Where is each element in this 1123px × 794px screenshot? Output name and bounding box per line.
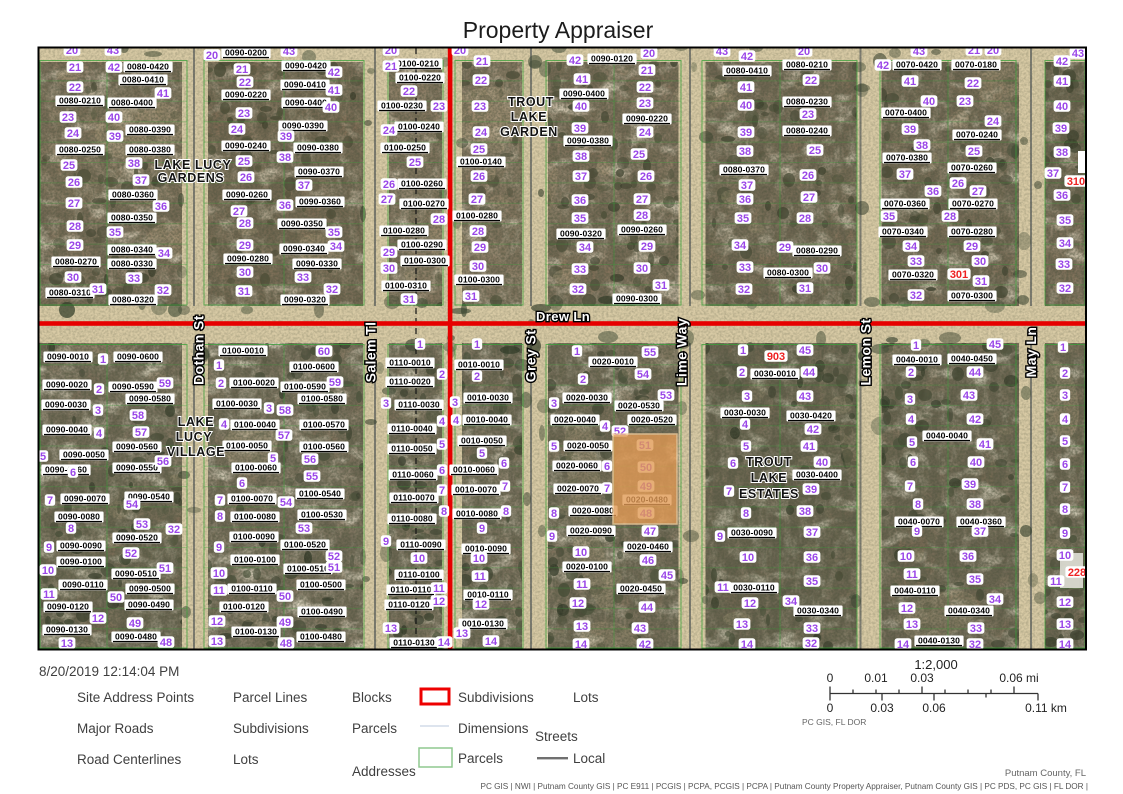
svg-text:0090-0400: 0090-0400 bbox=[563, 89, 605, 99]
svg-text:26: 26 bbox=[640, 171, 652, 183]
svg-text:32: 32 bbox=[168, 524, 180, 536]
svg-text:36: 36 bbox=[1056, 190, 1068, 202]
svg-text:3: 3 bbox=[266, 403, 272, 415]
svg-text:0040-0340: 0040-0340 bbox=[948, 606, 990, 616]
svg-text:37: 37 bbox=[1047, 168, 1059, 180]
svg-text:0: 0 bbox=[827, 701, 834, 715]
svg-text:25: 25 bbox=[633, 149, 645, 161]
svg-text:32: 32 bbox=[326, 284, 338, 296]
svg-text:26: 26 bbox=[802, 170, 814, 182]
svg-text:30: 30 bbox=[472, 261, 484, 273]
svg-text:4: 4 bbox=[221, 419, 228, 431]
svg-text:41: 41 bbox=[803, 441, 815, 453]
svg-text:0020-0060: 0020-0060 bbox=[556, 461, 598, 471]
svg-text:5: 5 bbox=[551, 441, 557, 453]
svg-text:7: 7 bbox=[1062, 482, 1068, 494]
svg-text:0080-0290: 0080-0290 bbox=[796, 246, 838, 256]
svg-text:TROUT: TROUT bbox=[746, 455, 792, 469]
svg-text:26: 26 bbox=[68, 177, 80, 189]
svg-text:2: 2 bbox=[580, 374, 586, 386]
svg-text:39: 39 bbox=[574, 123, 586, 135]
svg-text:May Ln: May Ln bbox=[1023, 327, 1039, 378]
svg-text:0070-0240: 0070-0240 bbox=[956, 130, 998, 140]
svg-text:0090-0040: 0090-0040 bbox=[46, 425, 88, 435]
svg-text:10: 10 bbox=[213, 568, 225, 580]
svg-text:0110-0120: 0110-0120 bbox=[388, 600, 430, 610]
svg-text:3: 3 bbox=[1062, 390, 1068, 402]
svg-text:35: 35 bbox=[883, 211, 895, 223]
svg-text:33: 33 bbox=[128, 273, 140, 285]
svg-text:12: 12 bbox=[572, 598, 584, 610]
svg-text:28: 28 bbox=[944, 211, 956, 223]
svg-text:11: 11 bbox=[1050, 576, 1062, 588]
svg-text:32: 32 bbox=[572, 284, 584, 296]
svg-text:0080-0340: 0080-0340 bbox=[111, 245, 153, 255]
svg-text:0110-0130: 0110-0130 bbox=[393, 638, 435, 648]
svg-text:8: 8 bbox=[441, 506, 447, 518]
svg-text:25: 25 bbox=[409, 157, 421, 169]
svg-text:26: 26 bbox=[473, 171, 485, 183]
svg-text:0: 0 bbox=[827, 671, 834, 685]
svg-text:0090-0010: 0090-0010 bbox=[47, 352, 89, 362]
svg-text:41: 41 bbox=[157, 88, 169, 100]
svg-text:6: 6 bbox=[70, 467, 76, 479]
svg-text:29: 29 bbox=[966, 241, 978, 253]
svg-text:3: 3 bbox=[551, 398, 557, 410]
svg-text:0030-0030: 0030-0030 bbox=[724, 408, 766, 418]
svg-text:45: 45 bbox=[661, 570, 673, 582]
svg-text:10: 10 bbox=[413, 553, 425, 565]
svg-text:39: 39 bbox=[904, 124, 916, 136]
svg-text:42: 42 bbox=[807, 424, 819, 436]
svg-text:12: 12 bbox=[92, 613, 104, 625]
svg-text:24: 24 bbox=[383, 125, 396, 137]
svg-text:36: 36 bbox=[279, 200, 291, 212]
svg-text:49: 49 bbox=[129, 618, 141, 630]
svg-text:0030-0110: 0030-0110 bbox=[733, 583, 775, 593]
svg-text:4: 4 bbox=[602, 421, 609, 433]
svg-text:57: 57 bbox=[278, 430, 290, 442]
svg-text:26: 26 bbox=[383, 179, 395, 191]
svg-text:2: 2 bbox=[908, 367, 914, 379]
svg-text:0110-0080: 0110-0080 bbox=[391, 514, 433, 524]
svg-text:2: 2 bbox=[474, 371, 480, 383]
svg-text:0100-0050: 0100-0050 bbox=[226, 441, 268, 451]
svg-text:10: 10 bbox=[742, 552, 754, 564]
svg-text:0070-0420: 0070-0420 bbox=[896, 60, 938, 70]
svg-text:LAKE: LAKE bbox=[178, 415, 214, 429]
svg-text:0090-0320: 0090-0320 bbox=[284, 295, 326, 305]
svg-text:35: 35 bbox=[574, 213, 586, 225]
svg-text:24: 24 bbox=[231, 124, 244, 136]
svg-text:0020-0450: 0020-0450 bbox=[620, 584, 662, 594]
svg-text:9: 9 bbox=[549, 531, 555, 543]
svg-text:7: 7 bbox=[604, 483, 610, 495]
svg-text:0010-0070: 0010-0070 bbox=[455, 485, 497, 495]
svg-text:0090-0090: 0090-0090 bbox=[60, 541, 102, 551]
svg-text:0110-0040: 0110-0040 bbox=[391, 424, 433, 434]
svg-text:0090-0380: 0090-0380 bbox=[567, 136, 609, 146]
svg-text:0070-0400: 0070-0400 bbox=[885, 108, 927, 118]
svg-text:0040-0040: 0040-0040 bbox=[926, 431, 968, 441]
svg-text:0100-0230: 0100-0230 bbox=[381, 101, 423, 111]
svg-text:35: 35 bbox=[969, 574, 981, 586]
svg-text:24: 24 bbox=[639, 127, 652, 139]
svg-text:0080-0400: 0080-0400 bbox=[111, 98, 153, 108]
svg-text:29: 29 bbox=[779, 242, 791, 254]
svg-text:0080-0380: 0080-0380 bbox=[129, 145, 171, 155]
svg-text:56: 56 bbox=[304, 454, 316, 466]
svg-text:48: 48 bbox=[160, 637, 172, 649]
svg-text:8: 8 bbox=[915, 499, 921, 511]
svg-text:1: 1 bbox=[913, 340, 919, 352]
svg-text:0010-0090: 0010-0090 bbox=[465, 544, 507, 554]
svg-text:0110-0010: 0110-0010 bbox=[389, 358, 431, 368]
svg-text:54: 54 bbox=[280, 497, 293, 509]
svg-text:30: 30 bbox=[636, 263, 648, 275]
svg-text:41: 41 bbox=[979, 439, 991, 451]
svg-text:0020-0080: 0020-0080 bbox=[572, 506, 614, 516]
svg-text:28: 28 bbox=[799, 213, 811, 225]
svg-text:4: 4 bbox=[96, 428, 103, 440]
svg-text:0020-0070: 0020-0070 bbox=[557, 484, 599, 494]
svg-text:0.06: 0.06 bbox=[922, 701, 946, 715]
svg-text:1: 1 bbox=[216, 360, 222, 372]
svg-text:0020-0050: 0020-0050 bbox=[567, 441, 609, 451]
svg-text:23: 23 bbox=[62, 112, 74, 124]
svg-text:40: 40 bbox=[1056, 101, 1068, 113]
svg-text:21: 21 bbox=[236, 64, 248, 76]
svg-text:29: 29 bbox=[641, 241, 653, 253]
svg-text:10: 10 bbox=[575, 547, 587, 559]
svg-text:1: 1 bbox=[574, 346, 580, 358]
svg-text:0.03: 0.03 bbox=[870, 701, 894, 715]
svg-text:0090-0500: 0090-0500 bbox=[129, 584, 171, 594]
svg-text:9: 9 bbox=[1062, 528, 1068, 540]
svg-text:36: 36 bbox=[927, 186, 939, 198]
svg-text:45: 45 bbox=[989, 339, 1001, 351]
svg-text:59: 59 bbox=[159, 378, 171, 390]
svg-text:35: 35 bbox=[109, 227, 121, 239]
svg-text:22: 22 bbox=[805, 75, 817, 87]
svg-text:0100-0570: 0100-0570 bbox=[303, 420, 345, 430]
svg-text:29: 29 bbox=[474, 242, 486, 254]
svg-text:33: 33 bbox=[297, 272, 309, 284]
svg-text:33: 33 bbox=[970, 623, 982, 635]
svg-text:0090-0590: 0090-0590 bbox=[112, 382, 154, 392]
svg-text:1: 1 bbox=[740, 345, 746, 357]
svg-text:44: 44 bbox=[803, 367, 816, 379]
svg-text:6: 6 bbox=[239, 478, 245, 490]
svg-text:55: 55 bbox=[306, 471, 318, 483]
svg-text:0090-0030: 0090-0030 bbox=[45, 400, 87, 410]
svg-text:38: 38 bbox=[916, 140, 928, 152]
svg-text:0090-0350: 0090-0350 bbox=[281, 219, 323, 229]
svg-text:5: 5 bbox=[439, 439, 445, 451]
svg-text:0030-0420: 0030-0420 bbox=[790, 411, 832, 421]
svg-text:1: 1 bbox=[1060, 342, 1066, 354]
svg-text:44: 44 bbox=[641, 602, 654, 614]
svg-text:6: 6 bbox=[1062, 459, 1068, 471]
svg-text:0090-0380: 0090-0380 bbox=[297, 143, 339, 153]
svg-text:40: 40 bbox=[816, 457, 828, 469]
svg-text:45: 45 bbox=[799, 345, 811, 357]
svg-text:34: 34 bbox=[579, 242, 592, 254]
svg-text:42: 42 bbox=[108, 62, 120, 74]
svg-text:23: 23 bbox=[474, 101, 486, 113]
svg-text:Lemon St: Lemon St bbox=[858, 319, 874, 386]
svg-text:28: 28 bbox=[636, 210, 648, 222]
svg-text:27: 27 bbox=[636, 194, 648, 206]
svg-text:42: 42 bbox=[328, 67, 340, 79]
svg-text:36: 36 bbox=[739, 194, 751, 206]
svg-text:0100-0590: 0100-0590 bbox=[284, 382, 326, 392]
svg-text:39: 39 bbox=[280, 131, 292, 143]
svg-text:36: 36 bbox=[806, 552, 818, 564]
svg-text:11: 11 bbox=[43, 589, 55, 601]
svg-text:0100-0530: 0100-0530 bbox=[301, 510, 343, 520]
svg-text:0090-0080: 0090-0080 bbox=[58, 512, 100, 522]
svg-text:0090-0260: 0090-0260 bbox=[226, 190, 268, 200]
svg-text:12: 12 bbox=[901, 603, 913, 615]
svg-text:13: 13 bbox=[906, 619, 918, 631]
svg-text:0090-0200: 0090-0200 bbox=[225, 48, 267, 58]
svg-text:0100-0110: 0100-0110 bbox=[231, 584, 273, 594]
svg-text:26: 26 bbox=[952, 178, 964, 190]
svg-text:57: 57 bbox=[135, 427, 147, 439]
svg-text:0100-0040: 0100-0040 bbox=[234, 420, 276, 430]
svg-text:0010-0110: 0010-0110 bbox=[467, 590, 509, 600]
svg-text:0070-0300: 0070-0300 bbox=[951, 291, 993, 301]
svg-text:0100-0300: 0100-0300 bbox=[458, 275, 500, 285]
svg-text:0070-0320: 0070-0320 bbox=[892, 270, 934, 280]
svg-text:34: 34 bbox=[785, 596, 798, 608]
svg-text:0020-0520: 0020-0520 bbox=[631, 415, 673, 425]
svg-text:54: 54 bbox=[126, 499, 139, 511]
svg-text:0090-0360: 0090-0360 bbox=[299, 197, 341, 207]
svg-text:ESTATES: ESTATES bbox=[739, 487, 799, 501]
svg-text:0100-0280: 0100-0280 bbox=[456, 211, 498, 221]
svg-text:51: 51 bbox=[328, 562, 340, 574]
svg-text:0100-0080: 0100-0080 bbox=[234, 512, 276, 522]
svg-text:6: 6 bbox=[730, 458, 736, 470]
svg-text:0090-0110: 0090-0110 bbox=[62, 580, 104, 590]
svg-text:0100-0600: 0100-0600 bbox=[293, 362, 335, 372]
svg-text:37: 37 bbox=[974, 526, 986, 538]
svg-text:22: 22 bbox=[639, 82, 651, 94]
svg-text:34: 34 bbox=[158, 248, 171, 260]
svg-text:Road Centerlines: Road Centerlines bbox=[77, 752, 182, 767]
svg-text:0090-0580: 0090-0580 bbox=[129, 394, 171, 404]
svg-text:0020-0090: 0020-0090 bbox=[570, 526, 612, 536]
svg-text:0090-0490: 0090-0490 bbox=[128, 600, 170, 610]
svg-text:0010-0010: 0010-0010 bbox=[458, 360, 500, 370]
svg-text:LAKE: LAKE bbox=[511, 110, 547, 124]
svg-text:0070-0340: 0070-0340 bbox=[882, 227, 924, 237]
svg-text:23: 23 bbox=[639, 98, 651, 110]
svg-text:0100-0100: 0100-0100 bbox=[234, 555, 276, 565]
svg-text:0100-0580: 0100-0580 bbox=[301, 394, 343, 404]
svg-text:37: 37 bbox=[298, 180, 310, 192]
svg-text:40: 40 bbox=[108, 112, 120, 124]
svg-text:Parcels: Parcels bbox=[458, 751, 503, 766]
svg-text:0100-0490: 0100-0490 bbox=[301, 607, 343, 617]
svg-text:34: 34 bbox=[989, 594, 1002, 606]
svg-text:Property Appraiser: Property Appraiser bbox=[463, 17, 654, 43]
svg-text:6: 6 bbox=[501, 458, 507, 470]
svg-text:27: 27 bbox=[68, 198, 80, 210]
svg-text:GARDEN: GARDEN bbox=[500, 125, 558, 139]
svg-text:6: 6 bbox=[604, 461, 610, 473]
svg-text:34: 34 bbox=[905, 241, 918, 253]
svg-text:9: 9 bbox=[216, 542, 222, 554]
svg-text:58: 58 bbox=[279, 405, 291, 417]
svg-text:0080-0240: 0080-0240 bbox=[786, 126, 828, 136]
svg-text:12: 12 bbox=[433, 596, 445, 608]
svg-text:0100-0240: 0100-0240 bbox=[398, 122, 440, 132]
svg-text:25: 25 bbox=[809, 145, 821, 157]
svg-text:0100-0010: 0100-0010 bbox=[222, 346, 264, 356]
svg-text:38: 38 bbox=[799, 506, 811, 518]
svg-text:0100-0020: 0100-0020 bbox=[233, 378, 275, 388]
svg-text:53: 53 bbox=[298, 523, 310, 535]
svg-text:41: 41 bbox=[904, 76, 916, 88]
svg-text:13: 13 bbox=[736, 619, 748, 631]
svg-text:4: 4 bbox=[742, 419, 749, 431]
svg-text:38: 38 bbox=[279, 152, 291, 164]
svg-text:903: 903 bbox=[767, 351, 785, 363]
svg-text:3: 3 bbox=[383, 398, 389, 410]
svg-text:0070-0280: 0070-0280 bbox=[951, 227, 993, 237]
svg-text:2: 2 bbox=[1062, 368, 1068, 380]
svg-text:2: 2 bbox=[218, 378, 224, 390]
svg-text:0010-0080: 0010-0080 bbox=[456, 509, 498, 519]
svg-text:4: 4 bbox=[453, 415, 460, 427]
svg-text:0070-0270: 0070-0270 bbox=[952, 199, 994, 209]
svg-text:4: 4 bbox=[908, 414, 915, 426]
svg-text:0030-0090: 0030-0090 bbox=[731, 528, 773, 538]
svg-text:5: 5 bbox=[909, 437, 915, 449]
svg-text:0090-0220: 0090-0220 bbox=[626, 114, 668, 124]
svg-text:9: 9 bbox=[914, 526, 920, 538]
svg-text:0020-0030: 0020-0030 bbox=[566, 393, 608, 403]
svg-text:0090-0410: 0090-0410 bbox=[284, 80, 326, 90]
svg-text:37: 37 bbox=[899, 169, 911, 181]
svg-text:0080-0410: 0080-0410 bbox=[726, 66, 768, 76]
svg-text:0100-0220: 0100-0220 bbox=[399, 73, 441, 83]
svg-text:28: 28 bbox=[433, 214, 445, 226]
svg-text:PC GIS | NWI | Putnam County G: PC GIS | NWI | Putnam County GIS | PC E9… bbox=[481, 782, 1089, 791]
svg-text:31: 31 bbox=[799, 283, 811, 295]
svg-text:0010-0050: 0010-0050 bbox=[461, 436, 503, 446]
svg-text:7: 7 bbox=[217, 495, 223, 507]
svg-text:42: 42 bbox=[877, 60, 889, 72]
svg-text:38: 38 bbox=[1056, 147, 1068, 159]
svg-text:43: 43 bbox=[799, 391, 811, 403]
svg-text:43: 43 bbox=[634, 623, 646, 635]
svg-text:35: 35 bbox=[806, 576, 818, 588]
svg-text:0090-0130: 0090-0130 bbox=[46, 625, 88, 635]
svg-text:5: 5 bbox=[40, 451, 46, 463]
svg-text:22: 22 bbox=[239, 77, 251, 89]
svg-text:9: 9 bbox=[46, 542, 52, 554]
svg-text:13: 13 bbox=[211, 636, 223, 648]
svg-text:0090-0600: 0090-0600 bbox=[117, 352, 159, 362]
svg-text:0100-0030: 0100-0030 bbox=[216, 399, 258, 409]
svg-text:36: 36 bbox=[574, 195, 586, 207]
svg-text:0100-0250: 0100-0250 bbox=[384, 143, 426, 153]
svg-text:0020-0100: 0020-0100 bbox=[566, 562, 608, 572]
svg-text:27: 27 bbox=[381, 194, 393, 206]
svg-text:0070-0180: 0070-0180 bbox=[955, 60, 997, 70]
svg-text:0110-0050: 0110-0050 bbox=[391, 444, 433, 454]
svg-text:0100-0290: 0100-0290 bbox=[401, 240, 443, 250]
svg-text:33: 33 bbox=[1058, 259, 1070, 271]
svg-text:9: 9 bbox=[717, 531, 723, 543]
svg-text:21: 21 bbox=[641, 65, 653, 77]
svg-text:12: 12 bbox=[1059, 597, 1071, 609]
svg-text:29: 29 bbox=[383, 247, 395, 259]
svg-text:0090-0260: 0090-0260 bbox=[621, 225, 663, 235]
svg-text:32: 32 bbox=[1059, 283, 1071, 295]
svg-text:53: 53 bbox=[660, 390, 672, 402]
svg-text:0080-0230: 0080-0230 bbox=[786, 97, 828, 107]
svg-text:0070-0260: 0070-0260 bbox=[951, 163, 993, 173]
svg-text:12: 12 bbox=[744, 598, 756, 610]
svg-text:0100-0140: 0100-0140 bbox=[460, 157, 502, 167]
svg-text:0070-0360: 0070-0360 bbox=[884, 199, 926, 209]
svg-text:Subdivisions: Subdivisions bbox=[233, 721, 309, 736]
svg-text:0090-0340: 0090-0340 bbox=[283, 244, 325, 254]
svg-text:41: 41 bbox=[740, 82, 752, 94]
svg-text:42: 42 bbox=[1056, 56, 1068, 68]
svg-text:33: 33 bbox=[910, 256, 922, 268]
svg-text:24: 24 bbox=[475, 127, 488, 139]
svg-text:11: 11 bbox=[213, 585, 225, 597]
svg-text:0020-0530: 0020-0530 bbox=[618, 401, 660, 411]
svg-text:1:2,000: 1:2,000 bbox=[914, 657, 957, 672]
svg-text:32: 32 bbox=[910, 290, 922, 302]
svg-text:54: 54 bbox=[637, 369, 650, 381]
svg-text:28: 28 bbox=[69, 221, 81, 233]
svg-text:0090-0070: 0090-0070 bbox=[64, 494, 106, 504]
svg-text:39: 39 bbox=[805, 484, 817, 496]
svg-text:27: 27 bbox=[471, 194, 483, 206]
svg-text:0010-0130: 0010-0130 bbox=[462, 619, 504, 629]
svg-text:0080-0410: 0080-0410 bbox=[122, 75, 164, 85]
svg-text:34: 34 bbox=[330, 241, 343, 253]
svg-text:0010-0040: 0010-0040 bbox=[466, 415, 508, 425]
svg-text:59: 59 bbox=[329, 377, 341, 389]
svg-text:7: 7 bbox=[726, 486, 732, 498]
svg-text:0090-0100: 0090-0100 bbox=[60, 557, 102, 567]
svg-text:33: 33 bbox=[739, 262, 751, 274]
svg-text:39: 39 bbox=[740, 127, 752, 139]
svg-text:52: 52 bbox=[125, 548, 137, 560]
svg-text:0030-0400: 0030-0400 bbox=[796, 470, 838, 480]
svg-text:0090-0510: 0090-0510 bbox=[115, 569, 157, 579]
svg-text:31: 31 bbox=[92, 284, 104, 296]
svg-text:Grey St: Grey St bbox=[523, 330, 539, 383]
svg-text:PC GIS, FL DOR: PC GIS, FL DOR bbox=[802, 717, 866, 727]
svg-text:0020-0040: 0020-0040 bbox=[554, 415, 596, 425]
svg-text:0090-0280: 0090-0280 bbox=[227, 254, 269, 264]
svg-text:2: 2 bbox=[96, 384, 102, 396]
svg-text:13: 13 bbox=[61, 638, 73, 650]
svg-text:32: 32 bbox=[157, 285, 169, 297]
svg-text:3: 3 bbox=[452, 397, 458, 409]
svg-text:55: 55 bbox=[644, 347, 656, 359]
